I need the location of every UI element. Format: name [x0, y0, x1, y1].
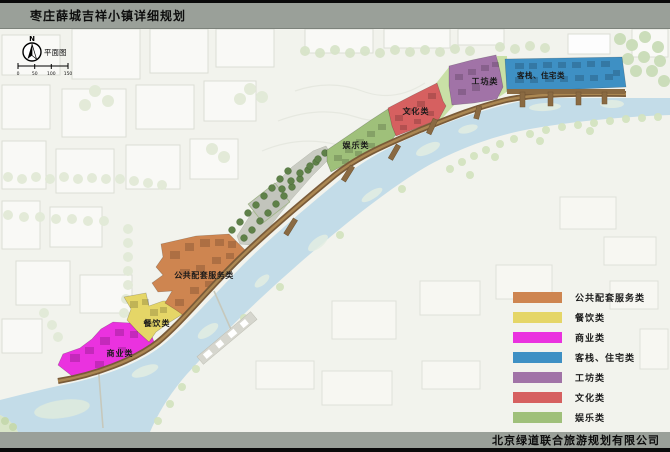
legend-label-inn-residence: 客栈、住宅类 — [575, 351, 635, 364]
scale-tick-0: 0 — [17, 71, 20, 77]
legend-item-inn-residence: 客栈、住宅类 — [513, 352, 645, 363]
label-public-service: 公共配套服务类 — [174, 270, 234, 280]
label-workshop: 工坊类 — [472, 76, 499, 86]
legend: 公共配套服务类 餐饮类 商业类 客栈、住宅类 工坊类 文化类 — [513, 292, 645, 423]
scale-tick-150: 150 — [64, 71, 73, 77]
bottom-black-strip — [0, 448, 670, 452]
plan-view-label: 平面图 — [44, 48, 67, 57]
legend-label-workshop: 工坊类 — [575, 371, 605, 384]
legend-item-dining: 餐饮类 — [513, 312, 645, 323]
map-area: 商业类 餐饮类 公共配套服务类 娱乐类 文化类 工坊类 客栈、住宅类 N 平面图 — [0, 29, 670, 430]
company-name: 北京绿道联合旅游规划有限公司 — [492, 432, 660, 448]
legend-label-culture: 文化类 — [575, 391, 605, 404]
legend-swatch-culture — [513, 392, 562, 403]
legend-item-culture: 文化类 — [513, 392, 645, 403]
footer-bar: 北京绿道联合旅游规划有限公司 — [0, 430, 670, 448]
page-title: 枣庄薛城吉祥小镇详细规划 — [30, 7, 186, 24]
scale-tick-50: 50 — [32, 71, 38, 77]
legend-swatch-entertainment — [513, 412, 562, 423]
scale-tick-100: 100 — [47, 71, 56, 77]
legend-swatch-dining — [513, 312, 562, 323]
legend-label-entertainment: 娱乐类 — [575, 411, 605, 424]
label-dining: 餐饮类 — [143, 318, 171, 328]
north-label: N — [29, 35, 35, 43]
legend-item-public-service: 公共配套服务类 — [513, 292, 645, 303]
legend-item-commercial: 商业类 — [513, 332, 645, 343]
label-inn-residence: 客栈、住宅类 — [516, 70, 565, 80]
label-culture: 文化类 — [403, 106, 430, 116]
legend-swatch-commercial — [513, 332, 562, 343]
legend-swatch-public-service — [513, 292, 562, 303]
legend-swatch-inn-residence — [513, 352, 562, 363]
label-entertainment: 娱乐类 — [343, 140, 370, 150]
legend-label-public-service: 公共配套服务类 — [575, 291, 645, 304]
legend-swatch-workshop — [513, 372, 562, 383]
legend-item-workshop: 工坊类 — [513, 372, 645, 383]
legend-label-commercial: 商业类 — [575, 331, 605, 344]
legend-item-entertainment: 娱乐类 — [513, 412, 645, 423]
label-commercial: 商业类 — [107, 348, 134, 358]
title-bar: 枣庄薛城吉祥小镇详细规划 — [0, 3, 670, 29]
legend-label-dining: 餐饮类 — [575, 311, 605, 324]
plan-sheet: 枣庄薛城吉祥小镇详细规划 — [0, 0, 670, 452]
